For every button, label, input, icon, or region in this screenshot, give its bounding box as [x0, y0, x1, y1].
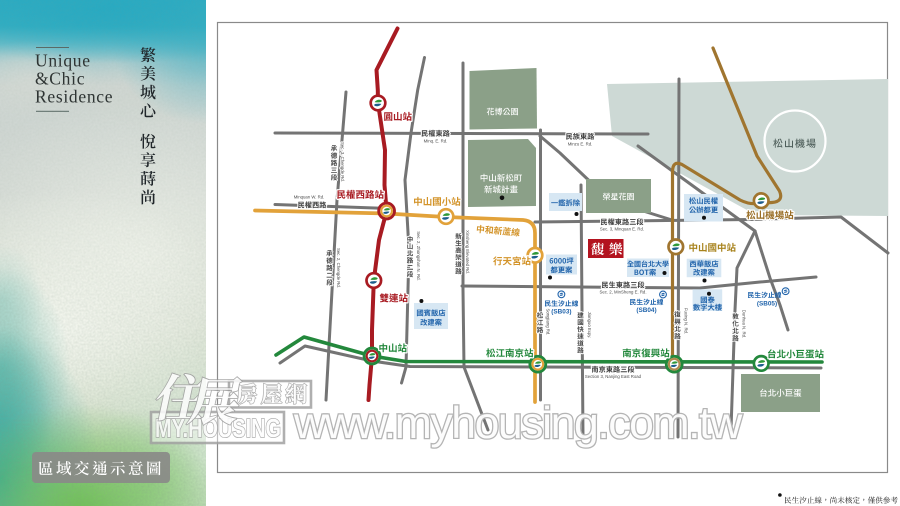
svg-text:Sec. 2, Zhongshan N. Rd.: Sec. 2, Zhongshan N. Rd.: [416, 231, 421, 280]
svg-text:Songjiang Rd.: Songjiang Rd.: [546, 309, 551, 336]
svg-text:Sec. 2, MinSheng E. Rd.: Sec. 2, MinSheng E. Rd.: [599, 290, 646, 295]
svg-text:Sec. 3, Chengde Rd.: Sec. 3, Chengde Rd.: [340, 142, 345, 182]
svg-text:Xinsheng Elevated Rd.: Xinsheng Elevated Rd.: [465, 230, 470, 274]
svg-text:www.myhousing.com.tw: www.myhousing.com.tw: [293, 399, 743, 448]
svg-text:Fuxing N. Rd.: Fuxing N. Rd.: [684, 308, 689, 334]
svg-text:Section 3, Nanjing East Road: Section 3, Nanjing East Road: [585, 374, 642, 379]
svg-text:Minquan W. Rd.: Minquan W. Rd.: [294, 195, 325, 200]
svg-text:Sec. 3, Minquan E. Rd.: Sec. 3, Minquan E. Rd.: [600, 227, 644, 232]
svg-text:Minq. E. Rd.: Minq. E. Rd.: [424, 139, 448, 144]
svg-text:Jianguo Expy.: Jianguo Expy.: [587, 312, 592, 339]
svg-text:Dunhua N. Rd.: Dunhua N. Rd.: [742, 310, 747, 338]
svg-text:Minzu E. Rd.: Minzu E. Rd.: [568, 142, 593, 147]
svg-text:(SB03): (SB03): [551, 309, 571, 316]
svg-text:(SB04): (SB04): [636, 307, 656, 314]
svg-text:Sec. 2, Chengde Rd.: Sec. 2, Chengde Rd.: [336, 248, 341, 288]
svg-text:(SB05): (SB05): [757, 301, 777, 308]
